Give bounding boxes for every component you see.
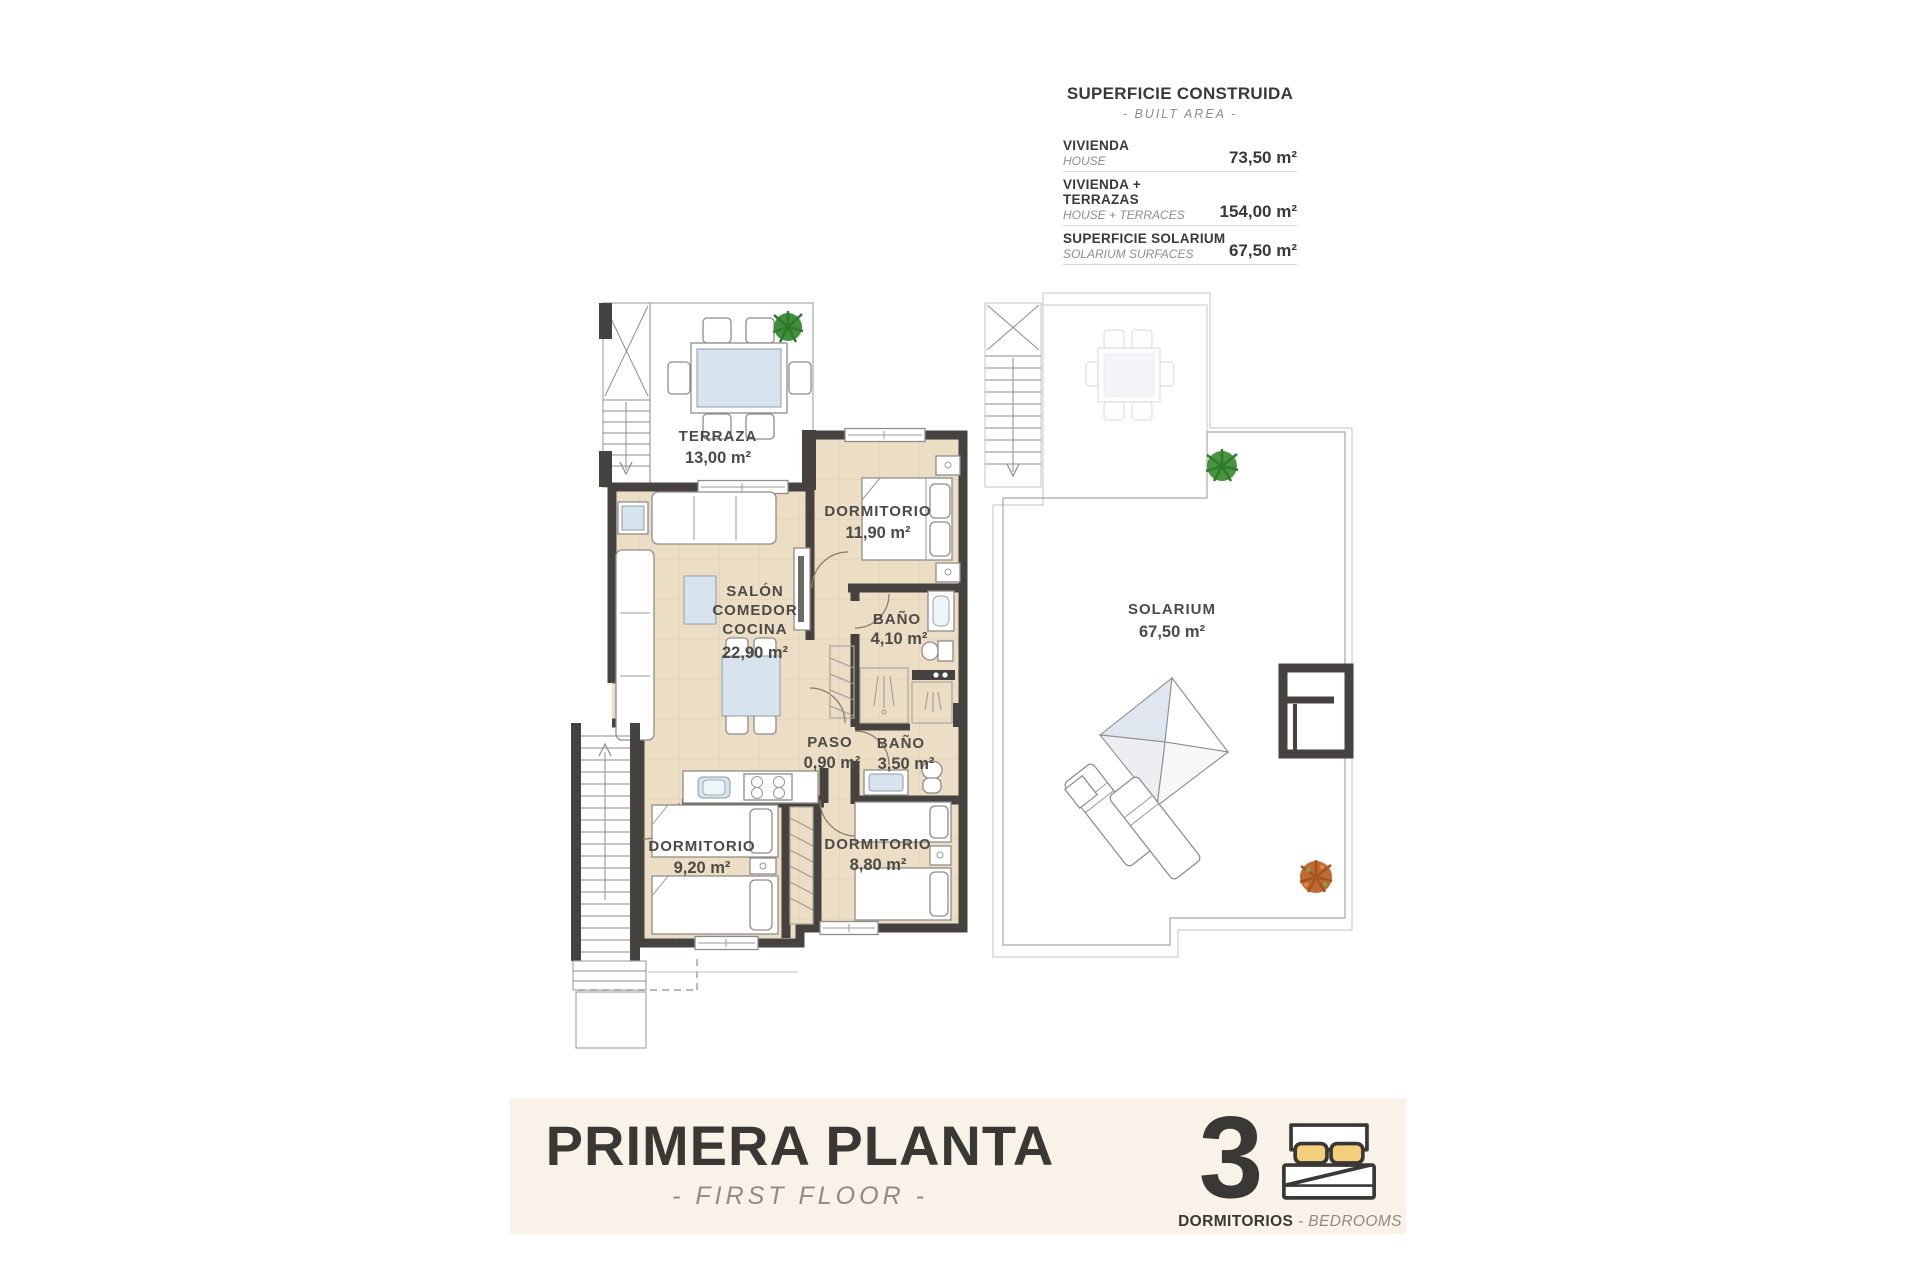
dorm3-window <box>820 922 878 935</box>
bedrooms-caption: DORMITORIOS - BEDROOMS <box>1170 1213 1410 1231</box>
terrace-plant-icon <box>773 311 803 342</box>
room-area-terraza: 13,00 m² <box>685 449 752 467</box>
legend-value: 67,50 m² <box>1229 241 1297 261</box>
floor-plan-page: TERRAZA 13,00 m² <box>0 0 1920 1280</box>
dorm1-window <box>845 429 925 442</box>
legend-label-en: SOLARIUM SURFACES <box>1063 247 1225 261</box>
legend-row-solarium: SUPERFICIE SOLARIUM SOLARIUM SURFACES 67… <box>1063 226 1297 265</box>
room-label-paso: PASO <box>807 734 852 751</box>
legend-label-es: VIVIENDA + TERRAZAS <box>1063 177 1220 207</box>
room-label-salon-2: COMEDOR <box>712 602 797 619</box>
stairwell-box <box>1283 668 1349 754</box>
nightstand-icon <box>750 858 776 874</box>
floor-title-block: PRIMERA PLANTA - FIRST FLOOR - <box>510 1118 1090 1211</box>
roof-terrace-ghost <box>1043 305 1207 498</box>
room-label-terraza: TERRAZA <box>679 428 758 445</box>
legend-label-en: HOUSE + TERRACES <box>1063 208 1220 222</box>
nightstand-icon <box>936 563 960 582</box>
floor-title: PRIMERA PLANTA <box>510 1118 1090 1174</box>
room-area-paso: 0,90 m² <box>804 754 861 772</box>
bedrooms-count: 3 <box>1199 1104 1264 1211</box>
room-label-salon-1: SALÓN <box>726 582 784 600</box>
apartment-plan: TERRAZA 13,00 m² <box>571 303 967 1048</box>
legend-row-house: VIVIENDA HOUSE 73,50 m² <box>1063 133 1297 172</box>
room-area-dorm3: 8,80 m² <box>850 856 907 874</box>
legend-label-es: SUPERFICIE SOLARIUM <box>1063 231 1225 246</box>
room-area-dorm1: 11,90 m² <box>845 524 911 542</box>
room-label-dorm1: DORMITORIO <box>824 503 931 520</box>
solarium-plant-icon <box>1300 860 1332 893</box>
room-area-solarium: 67,50 m² <box>1139 623 1206 641</box>
coffee-table-icon <box>684 576 716 624</box>
room-label-salon-3: COCINA <box>722 621 787 638</box>
room-area-bano1: 4,10 m² <box>871 630 928 648</box>
porch-tile <box>576 992 646 1048</box>
room-area-salon: 22,90 m² <box>722 644 789 662</box>
room-label-dorm2: DORMITORIO <box>648 838 755 855</box>
legend-label-en: HOUSE <box>1063 154 1129 168</box>
nightstand-icon <box>930 846 951 865</box>
room-label-bano1: BAÑO <box>873 610 921 628</box>
footer-banner: PRIMERA PLANTA - FIRST FLOOR - 3 <box>510 1098 1406 1234</box>
room-area-dorm2: 9,20 m² <box>674 859 731 877</box>
terrace-staircase-icon <box>599 303 650 487</box>
room-label-solarium: SOLARIUM <box>1128 601 1216 618</box>
legend-value: 73,50 m² <box>1229 148 1297 168</box>
washbasin-icon <box>928 591 954 631</box>
nightstand-icon <box>936 456 960 475</box>
legend-subtitle: - BUILT AREA - <box>1063 107 1297 121</box>
skylight-pyramid-icon <box>1100 678 1228 806</box>
legend-label-es: VIVIENDA <box>1063 138 1129 153</box>
bedrooms-block: 3 DORMITORIOS - BEDROOMS <box>1170 1104 1410 1231</box>
bedrooms-label-en: - BEDROOMS <box>1298 1213 1402 1230</box>
dorm2-window <box>695 937 758 950</box>
legend-rows: VIVIENDA HOUSE 73,50 m² VIVIENDA + TERRA… <box>1063 133 1297 265</box>
floor-plan-drawing: TERRAZA 13,00 m² <box>0 0 1920 1280</box>
side-table-icon <box>618 502 648 534</box>
roof-plant-icon <box>1206 449 1238 481</box>
floor-subtitle: - FIRST FLOOR - <box>510 1182 1090 1211</box>
legend-title: SUPERFICIE CONSTRUIDA <box>1063 84 1297 104</box>
built-area-legend: SUPERFICIE CONSTRUIDA - BUILT AREA - VIV… <box>1063 84 1297 265</box>
vanity-icon <box>864 770 908 795</box>
legend-row-house-terraces: VIVIENDA + TERRAZAS HOUSE + TERRACES 154… <box>1063 172 1297 226</box>
bed-icon <box>1277 1122 1381 1202</box>
room-label-dorm3: DORMITORIO <box>824 836 931 853</box>
roof-staircase-icon <box>985 303 1041 487</box>
room-label-bano2: BAÑO <box>877 734 925 752</box>
bedrooms-label-es: DORMITORIOS <box>1178 1213 1293 1230</box>
room-area-bano2: 3,50 m² <box>878 755 935 773</box>
legend-value: 154,00 m² <box>1220 202 1298 222</box>
solarium-plan: SOLARIUM 67,50 m² <box>985 293 1352 957</box>
kitchen-counter-icon <box>683 771 818 803</box>
